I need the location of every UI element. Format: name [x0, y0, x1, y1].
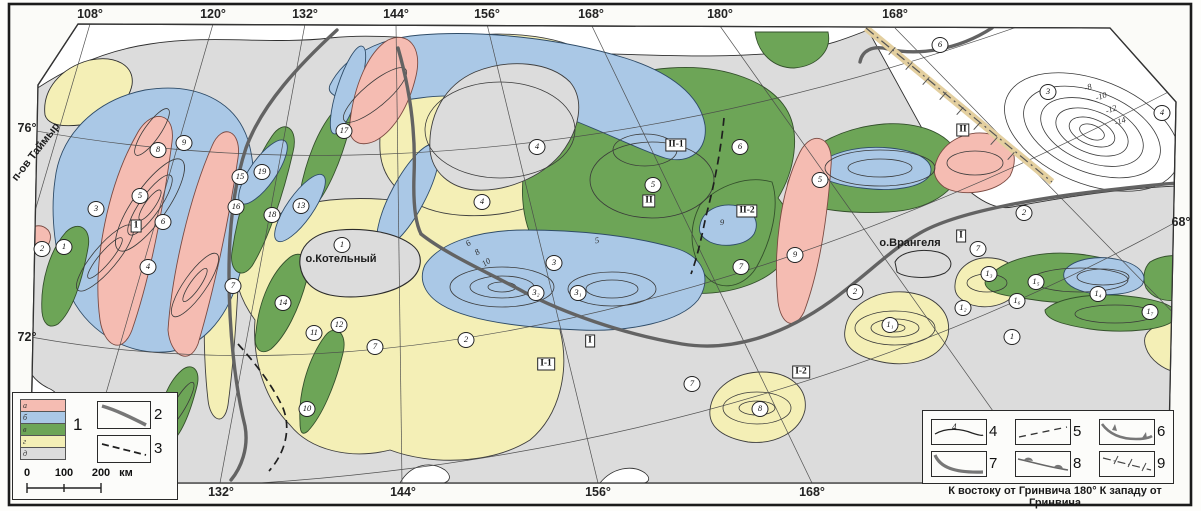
scale-0: 0 — [24, 467, 30, 479]
legend-item-8-number: 8 — [1073, 455, 1081, 472]
legend-item-7-symbol — [931, 451, 987, 477]
legend-color-swatches: абвгд — [20, 399, 66, 460]
legend-item-4-number: 4 — [989, 423, 997, 440]
scale-100: 100 — [55, 467, 73, 479]
legend-item-2-symbol — [97, 401, 151, 429]
legend-swatch-г: г — [20, 435, 66, 447]
scale-unit: км — [119, 467, 133, 479]
legend-item-8-symbol — [1015, 451, 1071, 477]
legend-swatch-а: а — [20, 399, 66, 411]
legend-item-3-number: 3 — [154, 440, 162, 457]
scale-200: 200 — [92, 467, 110, 479]
legend-item-9-symbol — [1099, 451, 1155, 477]
legend-item-4-symbol: 4 — [931, 419, 987, 445]
legend-swatch-letter: в — [23, 424, 26, 435]
legend-swatch-letter: г — [23, 436, 26, 447]
legend-swatch-б: б — [20, 411, 66, 423]
legend-swatch-letter: б — [23, 412, 27, 423]
legend-item-4-line-value: 4 — [952, 422, 957, 432]
geophysical-map-scan: 108°120°132°144°156°168°180°168°132°144°… — [0, 0, 1201, 511]
legend-item-7-number: 7 — [989, 455, 997, 472]
scale-bar — [13, 481, 173, 495]
legend-swatch-letter: д — [23, 448, 27, 459]
scale-bar-labels: 0 100 200 км — [13, 467, 173, 479]
legend-item-3-symbol — [97, 435, 151, 463]
legend-item-2-number: 2 — [154, 406, 162, 423]
legend-swatch-д: д — [20, 447, 66, 460]
legend-swatch-в: в — [20, 423, 66, 435]
legend-item-9-number: 9 — [1157, 455, 1165, 472]
legend-item-5-number: 5 — [1073, 423, 1081, 440]
legend-item-1-number: 1 — [73, 415, 82, 435]
legend-item-6-symbol — [1099, 419, 1155, 445]
legend-swatch-letter: а — [23, 400, 27, 411]
greenwich-caption: К востоку от Гринвича 180° К западу от Г… — [924, 485, 1186, 509]
legend-right: 4 4 5 6 7 8 9 — [922, 410, 1174, 484]
legend-item-5-symbol — [1015, 419, 1071, 445]
legend-left: абвгд 1 2 3 0 100 200 км — [12, 392, 178, 500]
legend-item-6-number: 6 — [1157, 423, 1165, 440]
